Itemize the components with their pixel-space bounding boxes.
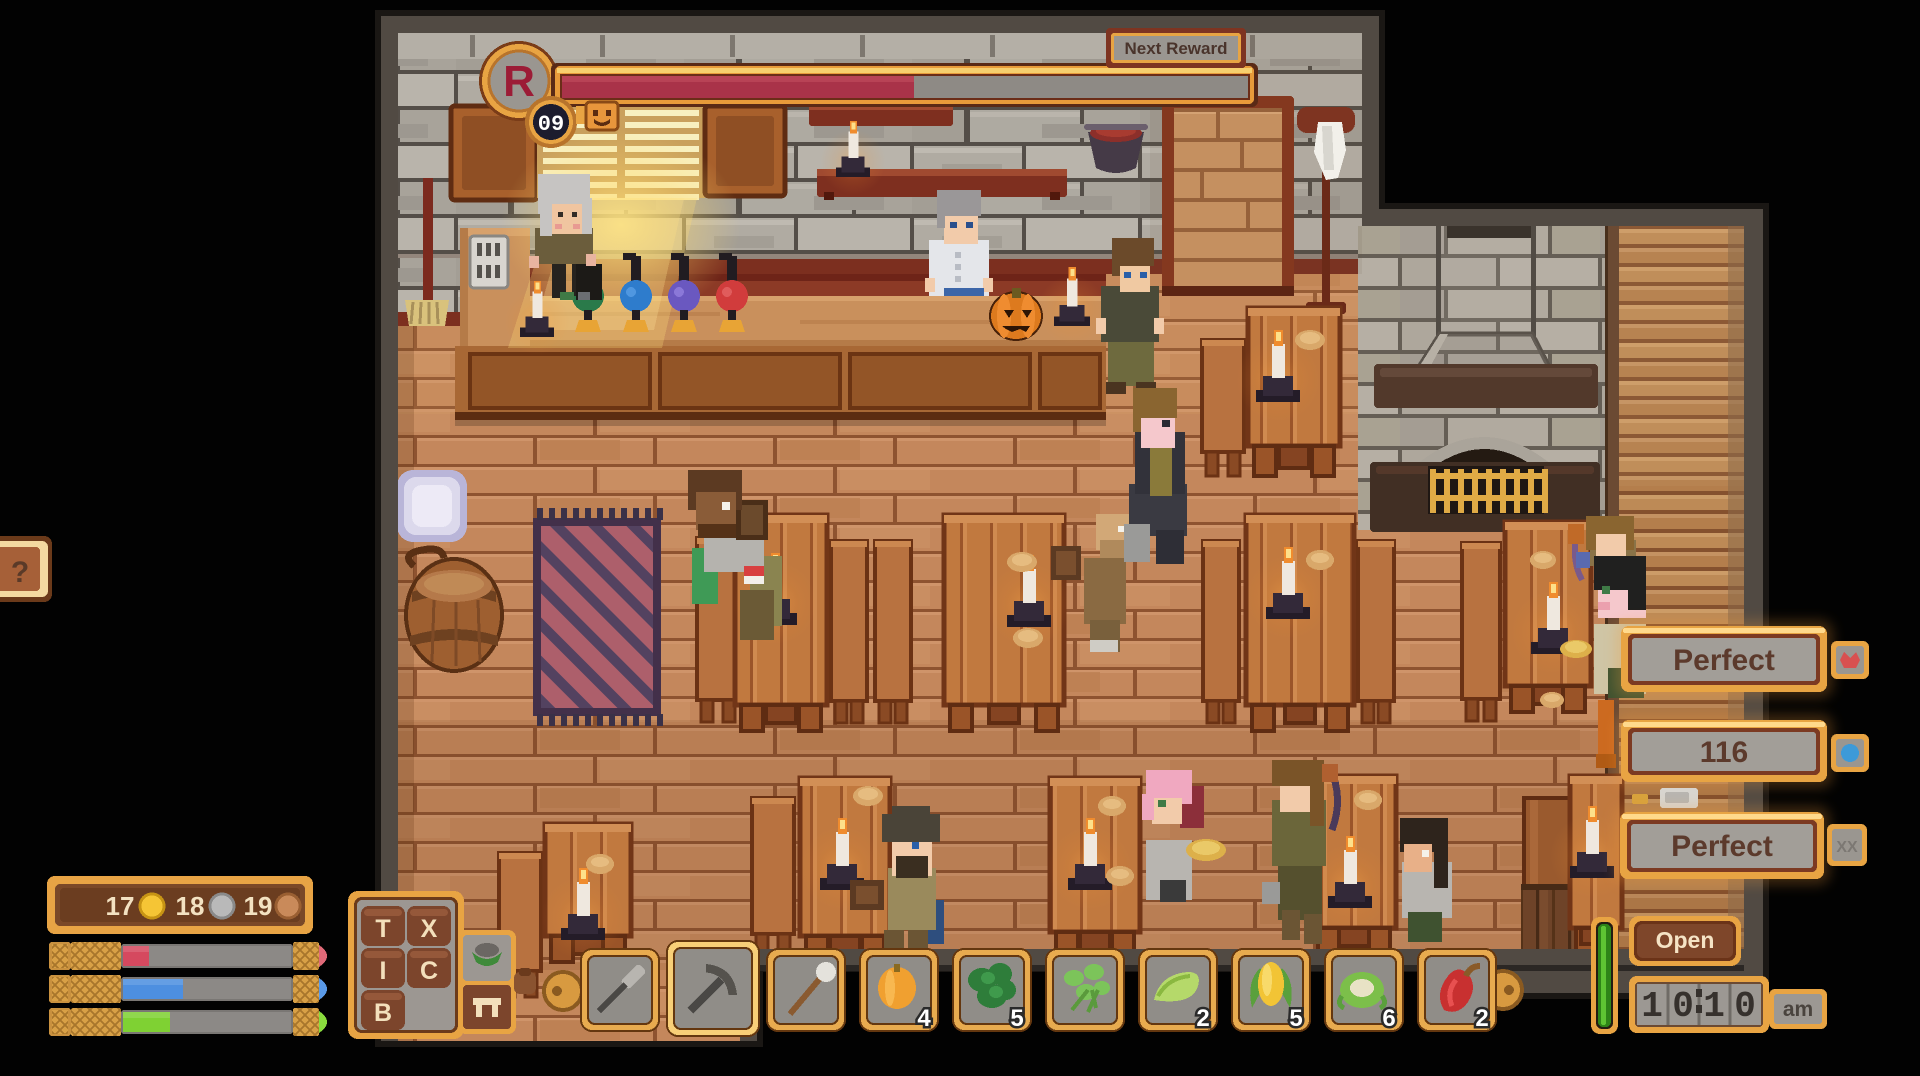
svg-text:5: 5	[1289, 1005, 1302, 1032]
svg-text:6: 6	[1382, 1005, 1395, 1032]
svg-text:Perfect: Perfect	[1671, 830, 1773, 863]
svg-text:09: 09	[538, 112, 564, 137]
svg-text:T: T	[375, 915, 390, 943]
svg-text:1: 1	[1703, 986, 1725, 1027]
svg-text:X: X	[421, 915, 438, 943]
svg-text:116: 116	[1700, 736, 1748, 769]
svg-text:2: 2	[1475, 1005, 1488, 1032]
svg-text:XX: XX	[1836, 839, 1858, 856]
svg-text:18: 18	[176, 891, 205, 921]
svg-text:17: 17	[106, 891, 135, 921]
svg-text:I: I	[380, 957, 387, 985]
svg-text:2: 2	[1196, 1005, 1209, 1032]
svg-text:5: 5	[1010, 1005, 1023, 1032]
svg-text:19: 19	[244, 891, 273, 921]
svg-text:0: 0	[1672, 986, 1694, 1027]
svg-text:am: am	[1783, 998, 1813, 1021]
svg-text:C: C	[420, 957, 438, 985]
svg-text:?: ?	[11, 556, 29, 589]
svg-text:Next Reward: Next Reward	[1125, 39, 1228, 58]
svg-text:Perfect: Perfect	[1673, 644, 1775, 677]
svg-text:R: R	[503, 57, 535, 106]
svg-text:Open: Open	[1656, 927, 1715, 953]
svg-text:0: 0	[1734, 986, 1756, 1027]
svg-text:4: 4	[917, 1005, 931, 1032]
svg-text:B: B	[374, 999, 392, 1027]
svg-text:1: 1	[1641, 986, 1663, 1027]
